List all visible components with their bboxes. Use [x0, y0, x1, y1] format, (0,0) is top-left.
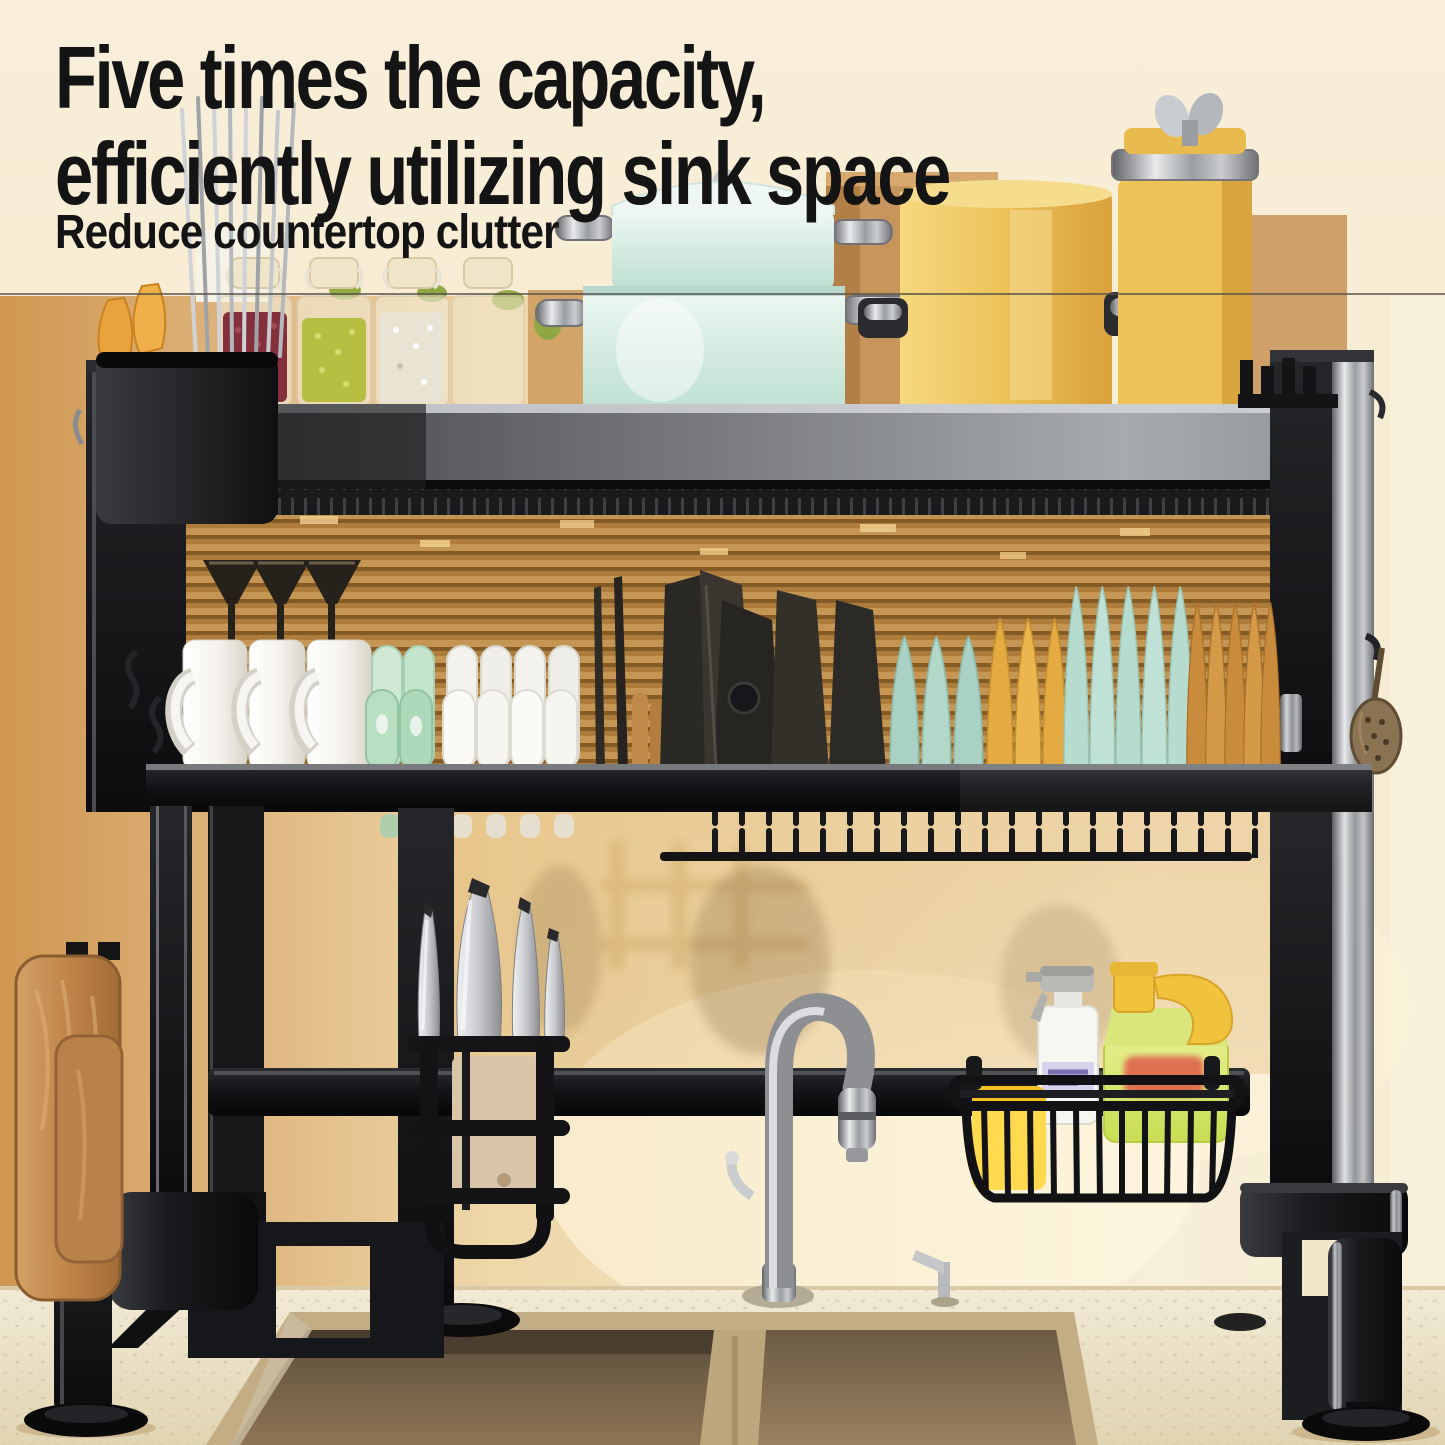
pot-handle — [536, 300, 588, 326]
plate-row-teal-small — [890, 636, 983, 770]
white-mugs — [174, 640, 371, 770]
rack-middle-shelf — [146, 764, 1372, 812]
rack-top-rail — [146, 404, 1372, 490]
double-sink — [206, 1312, 1098, 1445]
white-bowls — [443, 646, 579, 770]
kitchen-scene — [0, 0, 1445, 1445]
wooden-cutting-boards — [16, 942, 122, 1300]
jar-white-beans — [375, 258, 449, 406]
yellow-canister — [1112, 87, 1258, 414]
green-bowls — [366, 646, 434, 770]
plate-row-amber — [1187, 602, 1280, 769]
mug — [298, 640, 371, 770]
plate-prongs — [700, 812, 1260, 858]
product-image: Five times the capacity, efficiently uti… — [0, 0, 1445, 1445]
utensil-cup — [96, 352, 278, 524]
plate-row-yellow — [987, 618, 1066, 771]
sink-right-basin — [756, 1330, 1076, 1445]
drain-mesh — [185, 489, 1273, 515]
jar-green-beans — [297, 258, 371, 406]
lid-knob — [729, 683, 759, 713]
prong-rail — [660, 852, 1252, 861]
divider-line — [0, 293, 1445, 295]
